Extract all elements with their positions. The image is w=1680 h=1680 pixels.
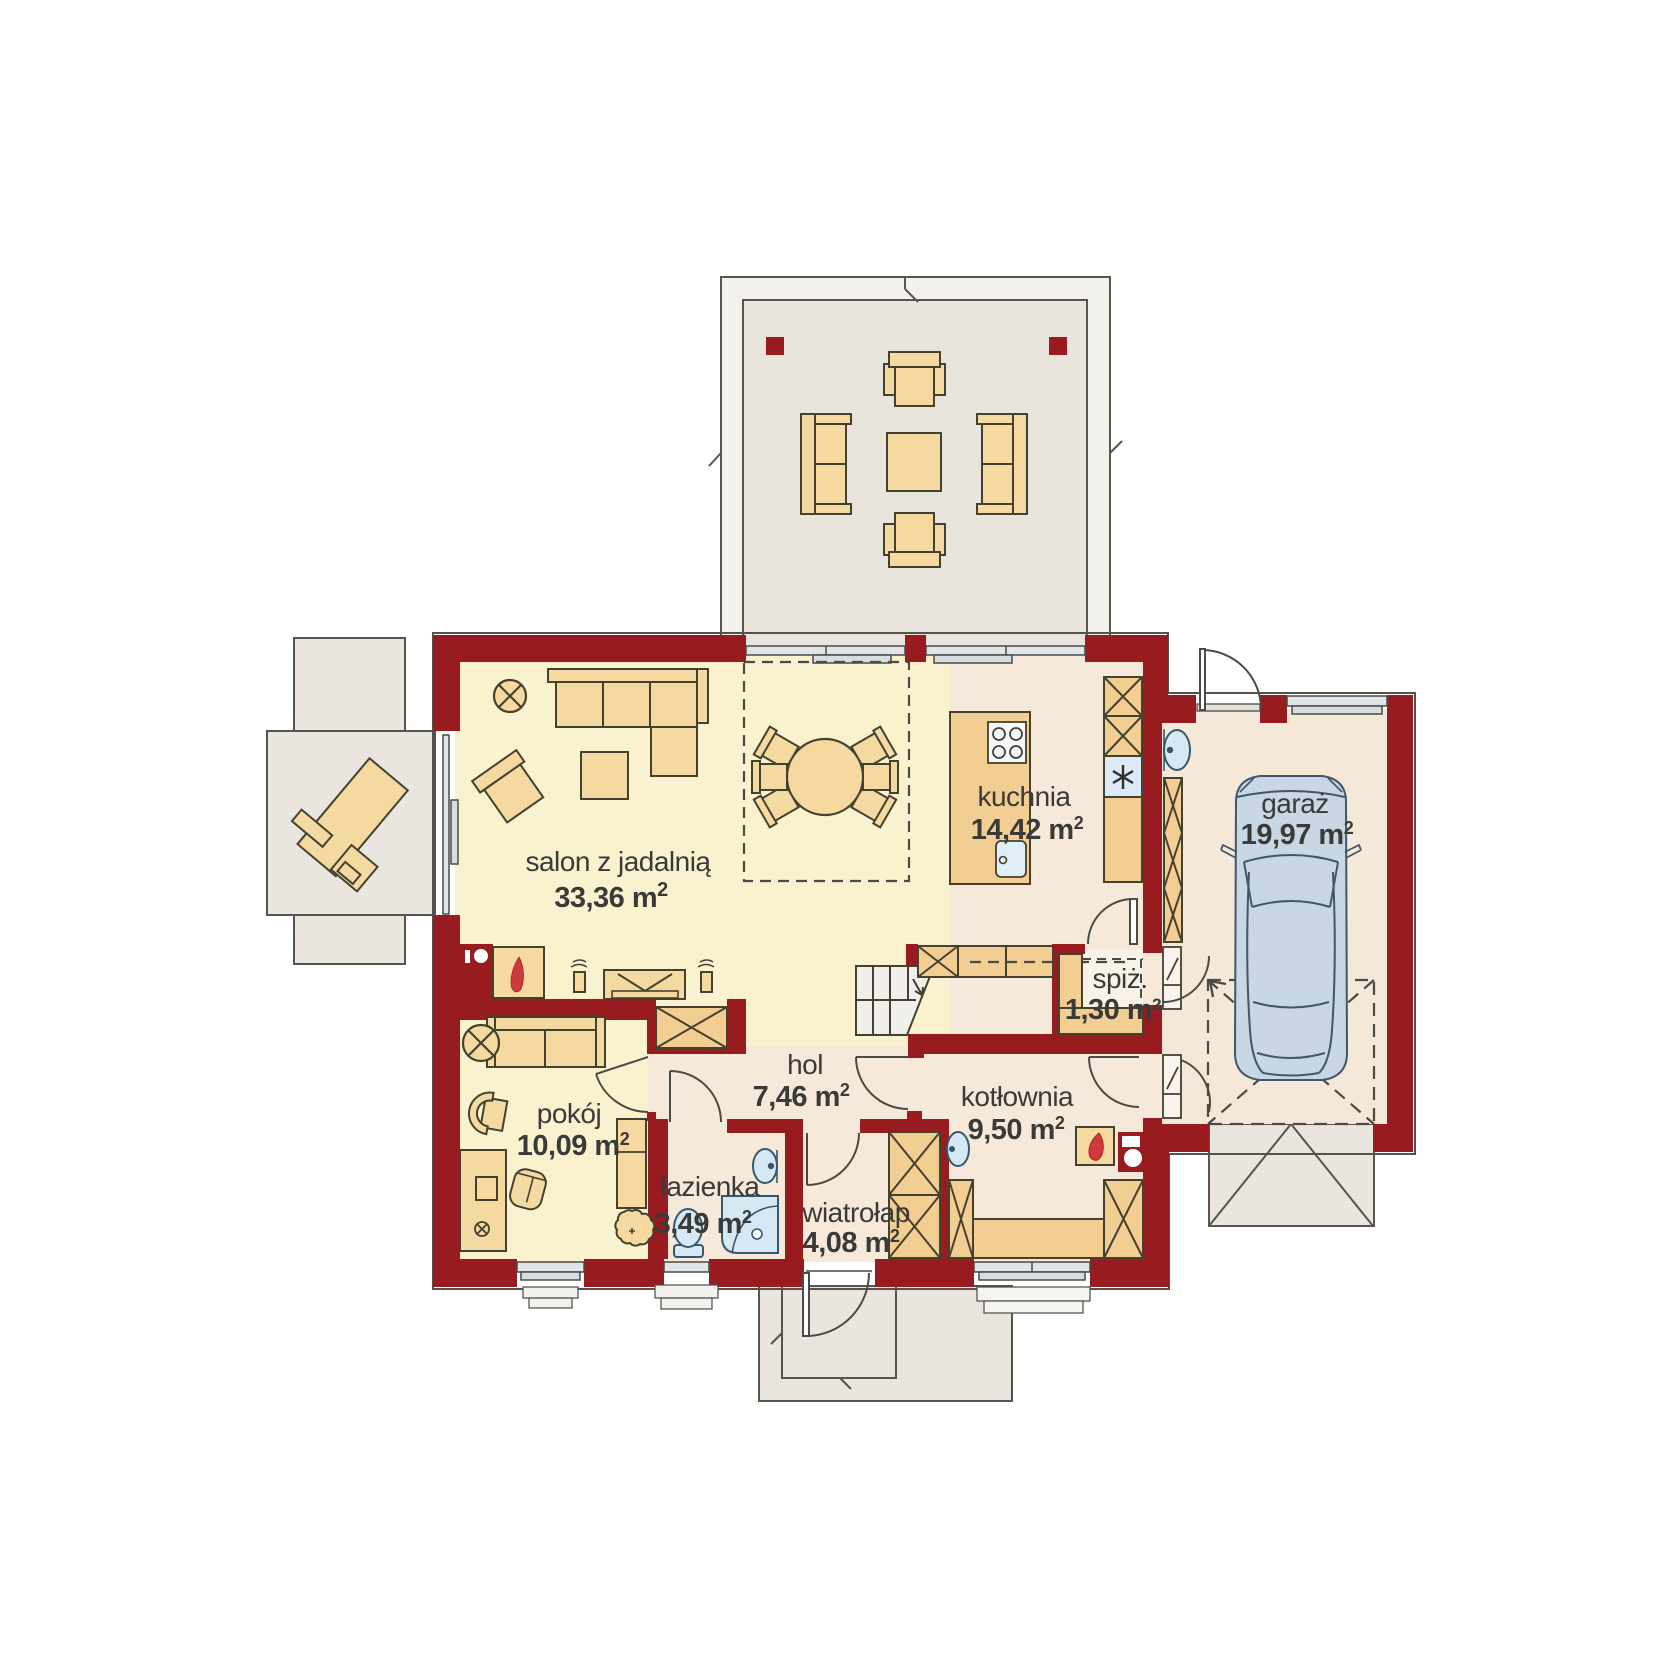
svg-text:salon z jadalnią: salon z jadalnią bbox=[525, 846, 711, 877]
svg-text:kotłownia: kotłownia bbox=[961, 1081, 1074, 1112]
svg-text:33,36 m2: 33,36 m2 bbox=[554, 879, 668, 914]
svg-text:łazienka: łazienka bbox=[661, 1171, 761, 1202]
svg-text:7,46 m2: 7,46 m2 bbox=[753, 1080, 850, 1113]
svg-text:4,08 m2: 4,08 m2 bbox=[803, 1226, 900, 1259]
svg-text:3,49 m2: 3,49 m2 bbox=[655, 1207, 752, 1240]
svg-text:14,42 m2: 14,42 m2 bbox=[971, 813, 1084, 846]
svg-text:pokój: pokój bbox=[537, 1098, 601, 1129]
svg-text:9,50 m2: 9,50 m2 bbox=[968, 1113, 1065, 1146]
svg-text:kuchnia: kuchnia bbox=[977, 781, 1071, 812]
svg-text:wiatrołap: wiatrołap bbox=[801, 1197, 910, 1228]
svg-text:1,30 m2: 1,30 m2 bbox=[1065, 994, 1161, 1026]
svg-text:19,97 m2: 19,97 m2 bbox=[1241, 818, 1354, 851]
svg-text:hol: hol bbox=[787, 1049, 823, 1080]
svg-text:spiż.: spiż. bbox=[1092, 963, 1147, 994]
svg-text:10,09 m2: 10,09 m2 bbox=[517, 1129, 630, 1162]
svg-text:garaż: garaż bbox=[1261, 788, 1329, 819]
